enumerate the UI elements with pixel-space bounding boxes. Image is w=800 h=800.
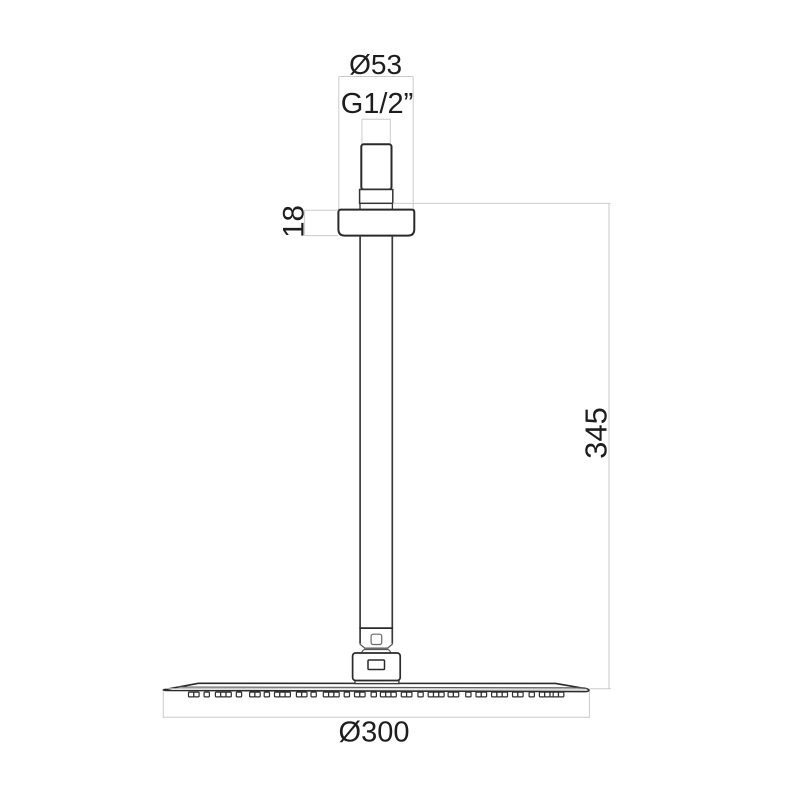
svg-text:Ø53: Ø53 [349, 49, 402, 80]
svg-text:Ø300: Ø300 [339, 717, 410, 749]
svg-text:G1/2”: G1/2” [341, 88, 414, 120]
svg-text:345: 345 [579, 407, 614, 459]
svg-text:18: 18 [278, 205, 311, 238]
